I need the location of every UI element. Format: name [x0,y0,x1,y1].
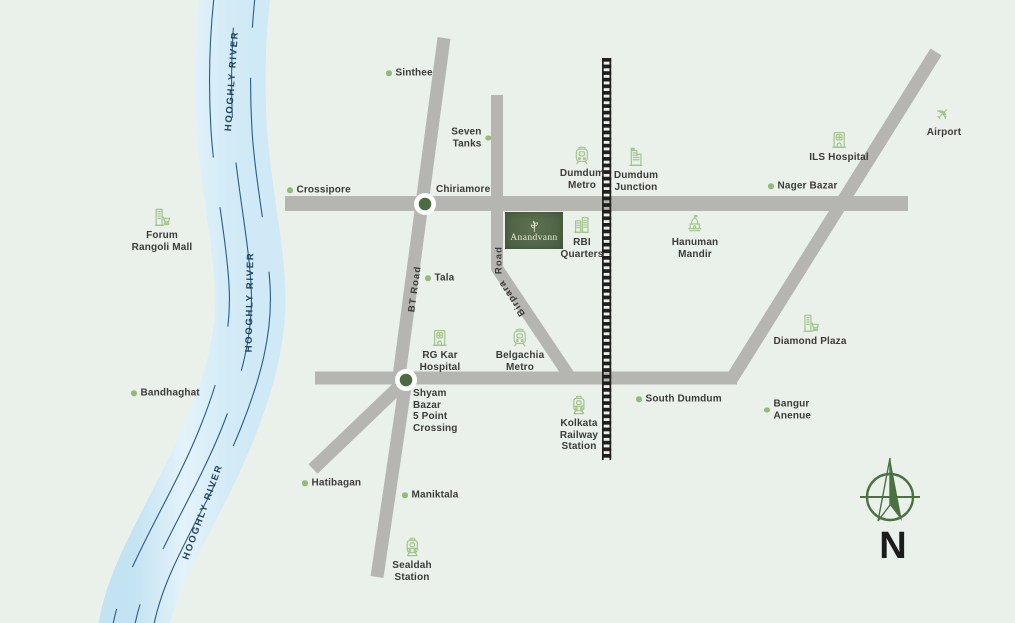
place-dot [636,396,642,402]
location-label: Hatibagan [312,477,362,489]
node-chiriamore [414,193,436,215]
project-name: Anandvann [510,233,557,243]
location-label: South Dumdum [646,393,722,405]
location-shyam-bazar-5-point-crossing: Shyam Bazar 5 Point Crossing [413,388,458,434]
mall-icon [799,312,821,334]
compass-icon [860,458,920,521]
compass-north-label: N [879,526,906,566]
place-dot [764,407,770,413]
place-dot [302,480,308,486]
location-crossipore: Crossipore [287,184,351,196]
place-dot [402,492,408,498]
location-label: Airport [927,127,961,139]
location-label: Sinthee [396,67,433,79]
location-dumdum-junction: Dumdum Junction [614,146,658,193]
sapling-logo-icon [527,219,542,233]
location-label: Kolkata Railway Station [560,418,598,453]
hospital-icon [828,128,850,150]
location-bandhaghat: Bandhaghat [131,387,200,399]
train-icon [568,394,590,416]
location-chiriamore: Chiriamore [436,184,490,196]
place-dot [425,275,431,281]
location-bangur-anenue: Bangur Anenue [764,399,811,422]
temple-icon [684,213,706,235]
location-tala: Tala [425,272,454,284]
place-dot [131,390,137,396]
mall-icon [151,206,173,228]
location-belgachia-metro: Belgachia Metro [496,326,545,373]
anandvann-project-box: Anandvann [505,212,563,249]
location-seven-tanks: Seven Tanks [451,127,491,150]
location-label: ILS Hospital [809,152,869,164]
metro-icon [571,144,593,166]
location-dumdum-metro: Dumdum Metro [560,144,604,191]
metro-icon [509,326,531,348]
map-canvas: ✈ [0,0,1015,623]
location-maniktala: Maniktala [402,489,458,501]
location-ils-hospital: ILS Hospital [809,128,869,164]
location-diamond-plaza: Diamond Plaza [773,312,846,348]
location-label: Bandhaghat [141,387,200,399]
location-label: Sealdah Station [392,560,431,583]
location-label: Seven Tanks [451,127,481,150]
plane-icon [933,103,955,125]
train-icon [401,536,423,558]
location-south-dumdum: South Dumdum [636,393,722,405]
location-label: Diamond Plaza [773,336,846,348]
road-suffix-label: Road [494,246,505,274]
location-label: Forum Rangoli Mall [132,230,193,253]
location-nager-bazar: Nager Bazar [768,180,838,192]
location-kolkata-railway-station: Kolkata Railway Station [560,394,598,453]
location-label: Shyam Bazar 5 Point Crossing [413,388,458,434]
location-label: RBI Quarters [561,237,604,260]
location-label: Tala [435,272,455,284]
location-label: Crossipore [297,184,351,196]
buildings-icon [571,213,593,235]
hospital-icon [429,326,451,348]
location-label: Maniktala [412,489,459,501]
location-label: Nager Bazar [778,180,838,192]
location-rg-kar-hospital: RG Kar Hospital [420,326,461,373]
location-label: RG Kar Hospital [420,350,461,373]
location-sinthee: Sinthee [386,67,433,79]
junction-icon [625,146,647,168]
location-forum-rangoli-mall: Forum Rangoli Mall [132,206,193,253]
place-dot [287,187,293,193]
river-label: HOOGHLY RIVER [244,252,257,353]
location-label: Chiriamore [436,184,490,196]
location-hatibagan: Hatibagan [302,477,361,489]
location-label: Belgachia Metro [496,350,545,373]
location-rbi-quarters: RBI Quarters [561,213,604,260]
location-airport: Airport [927,103,961,139]
location-label: Dumdum Junction [614,170,658,193]
place-dot [486,135,492,141]
location-label: Bangur Anenue [774,399,812,422]
map-base-graphic: ✈ [0,0,1015,623]
location-label: Hanuman Mandir [672,237,719,260]
place-dot [768,183,774,189]
location-hanuman-mandir: Hanuman Mandir [672,213,719,260]
location-sealdah-station: Sealdah Station [392,536,431,583]
location-label: Dumdum Metro [560,168,604,191]
place-dot [386,70,392,76]
